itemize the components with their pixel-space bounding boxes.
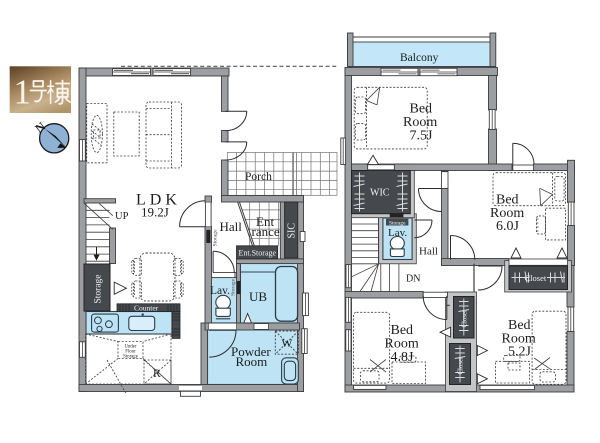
svg-text:Ent.Storage: Ent.Storage (239, 249, 277, 258)
svg-text:Storage: Storage (94, 274, 104, 303)
svg-text:Hall: Hall (220, 219, 243, 234)
svg-text:7.5J: 7.5J (410, 129, 434, 144)
svg-text:W: W (282, 338, 293, 350)
svg-text:Storage: Storage (213, 229, 219, 247)
svg-text:Hall: Hall (419, 246, 438, 258)
svg-text:R: R (153, 368, 161, 380)
svg-text:Closet: Closet (525, 273, 547, 283)
svg-text:Lav.: Lav. (210, 285, 230, 297)
svg-text:DN: DN (406, 274, 420, 285)
svg-text:Storage: Storage (123, 355, 138, 360)
svg-text:UP: UP (115, 211, 129, 222)
svg-text:Porch: Porch (245, 171, 272, 183)
svg-text:Counter: Counter (134, 304, 159, 313)
svg-text:SIC: SIC (287, 223, 298, 239)
svg-text:5.2J: 5.2J (508, 345, 532, 360)
svg-text:6.0J: 6.0J (496, 219, 520, 234)
svg-text:4.8J: 4.8J (391, 350, 415, 365)
svg-text:Closet: Closet (461, 310, 468, 327)
svg-text:Balcony: Balcony (400, 52, 439, 64)
svg-text:Closet: Closet (458, 357, 465, 374)
svg-text:rance: rance (252, 224, 280, 239)
svg-text:19.2J: 19.2J (141, 205, 169, 220)
svg-text:WIC: WIC (370, 188, 390, 199)
svg-text:Storage: Storage (230, 278, 236, 296)
svg-text:Room: Room (236, 354, 268, 369)
svg-text:UB: UB (249, 289, 267, 304)
svg-text:Storage: Storage (389, 220, 406, 226)
svg-text:1: 1 (14, 73, 32, 112)
